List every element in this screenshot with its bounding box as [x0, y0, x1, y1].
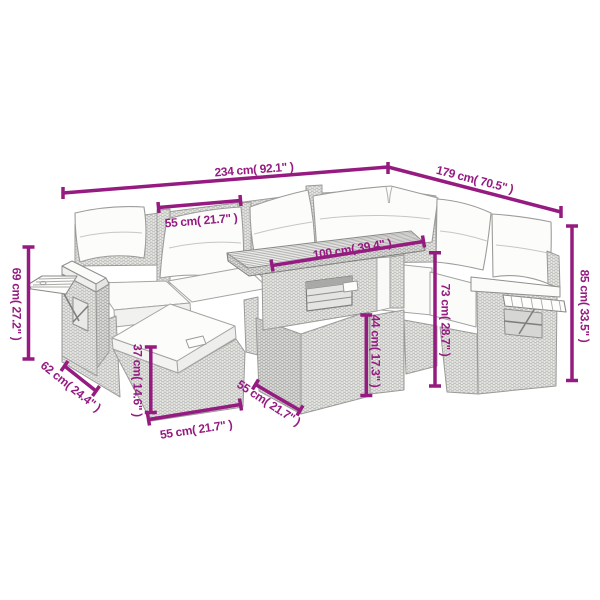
svg-text:73 cm( 28.7" ): 73 cm( 28.7" )	[439, 284, 453, 357]
svg-text:44 cm( 17.3" ): 44 cm( 17.3" )	[369, 315, 383, 388]
svg-text:37 cm( 14.6" ): 37 cm( 14.6" )	[131, 344, 145, 417]
svg-text:85 cm( 33.5" ): 85 cm( 33.5" )	[578, 270, 592, 343]
svg-text:69 cm( 27.2" ): 69 cm( 27.2" )	[10, 268, 24, 341]
